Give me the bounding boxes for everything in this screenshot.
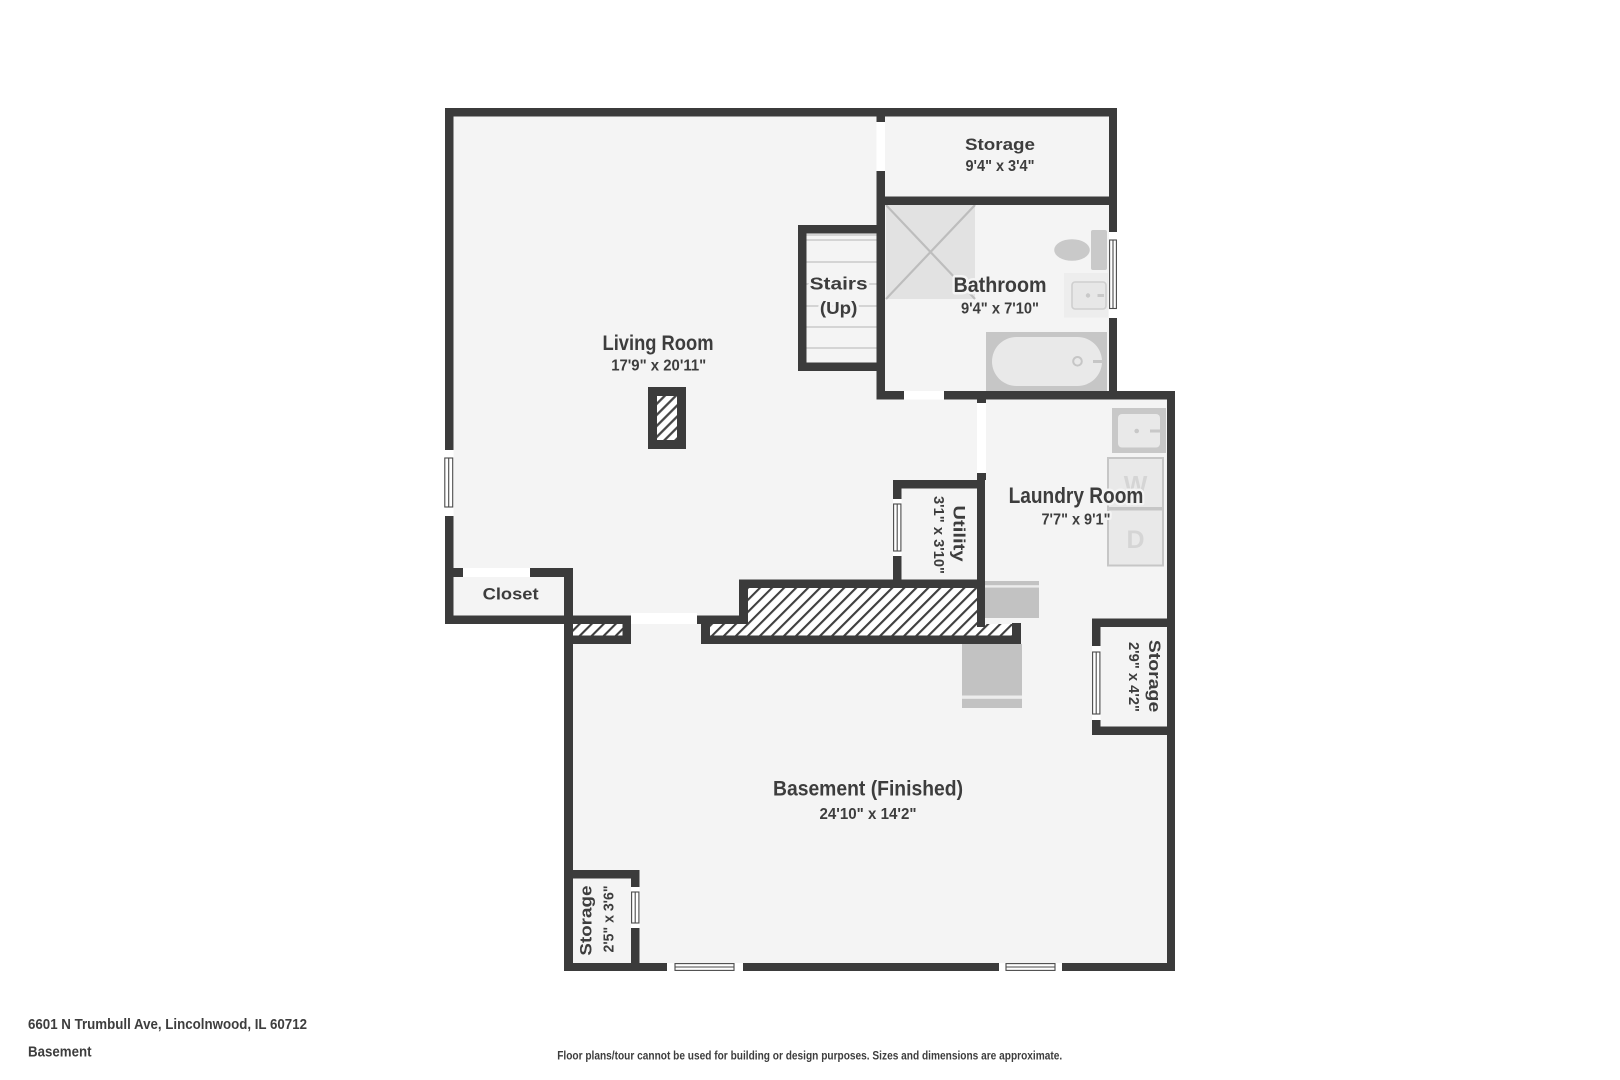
svg-text:Storage: Storage xyxy=(577,886,596,956)
svg-text:Storage: Storage xyxy=(1145,640,1164,713)
svg-text:D: D xyxy=(1126,526,1144,554)
svg-text:Storage: Storage xyxy=(965,135,1035,154)
svg-text:9'4" x 3'4": 9'4" x 3'4" xyxy=(966,158,1035,175)
svg-text:Basement: Basement xyxy=(28,1045,92,1061)
svg-text:(Up): (Up) xyxy=(820,298,858,318)
svg-text:Bathroom: Bathroom xyxy=(954,274,1047,297)
svg-text:24'10" x 14'2": 24'10" x 14'2" xyxy=(820,806,917,823)
svg-text:Floor plans/tour cannot be use: Floor plans/tour cannot be used for buil… xyxy=(557,1051,1062,1063)
svg-text:Closet: Closet xyxy=(483,585,539,604)
svg-text:Utility: Utility xyxy=(949,505,968,562)
svg-text:Laundry Room: Laundry Room xyxy=(1009,483,1144,508)
svg-text:3'1" x 3'10": 3'1" x 3'10" xyxy=(930,496,946,574)
svg-text:Living Room: Living Room xyxy=(603,332,714,355)
svg-text:17'9" x 20'11": 17'9" x 20'11" xyxy=(611,357,706,374)
svg-text:9'4" x 7'10": 9'4" x 7'10" xyxy=(961,300,1039,317)
svg-text:Basement (Finished): Basement (Finished) xyxy=(773,776,963,800)
svg-text:2'9" x 4'2": 2'9" x 4'2" xyxy=(1125,642,1141,712)
svg-text:6601 N Trumbull Ave, Lincolnwo: 6601 N Trumbull Ave, Lincolnwood, IL 607… xyxy=(28,1017,307,1033)
svg-text:Stairs: Stairs xyxy=(810,273,868,293)
svg-text:7'7" x 9'1": 7'7" x 9'1" xyxy=(1042,511,1111,528)
svg-text:2'5" x 3'6": 2'5" x 3'6" xyxy=(602,886,618,953)
